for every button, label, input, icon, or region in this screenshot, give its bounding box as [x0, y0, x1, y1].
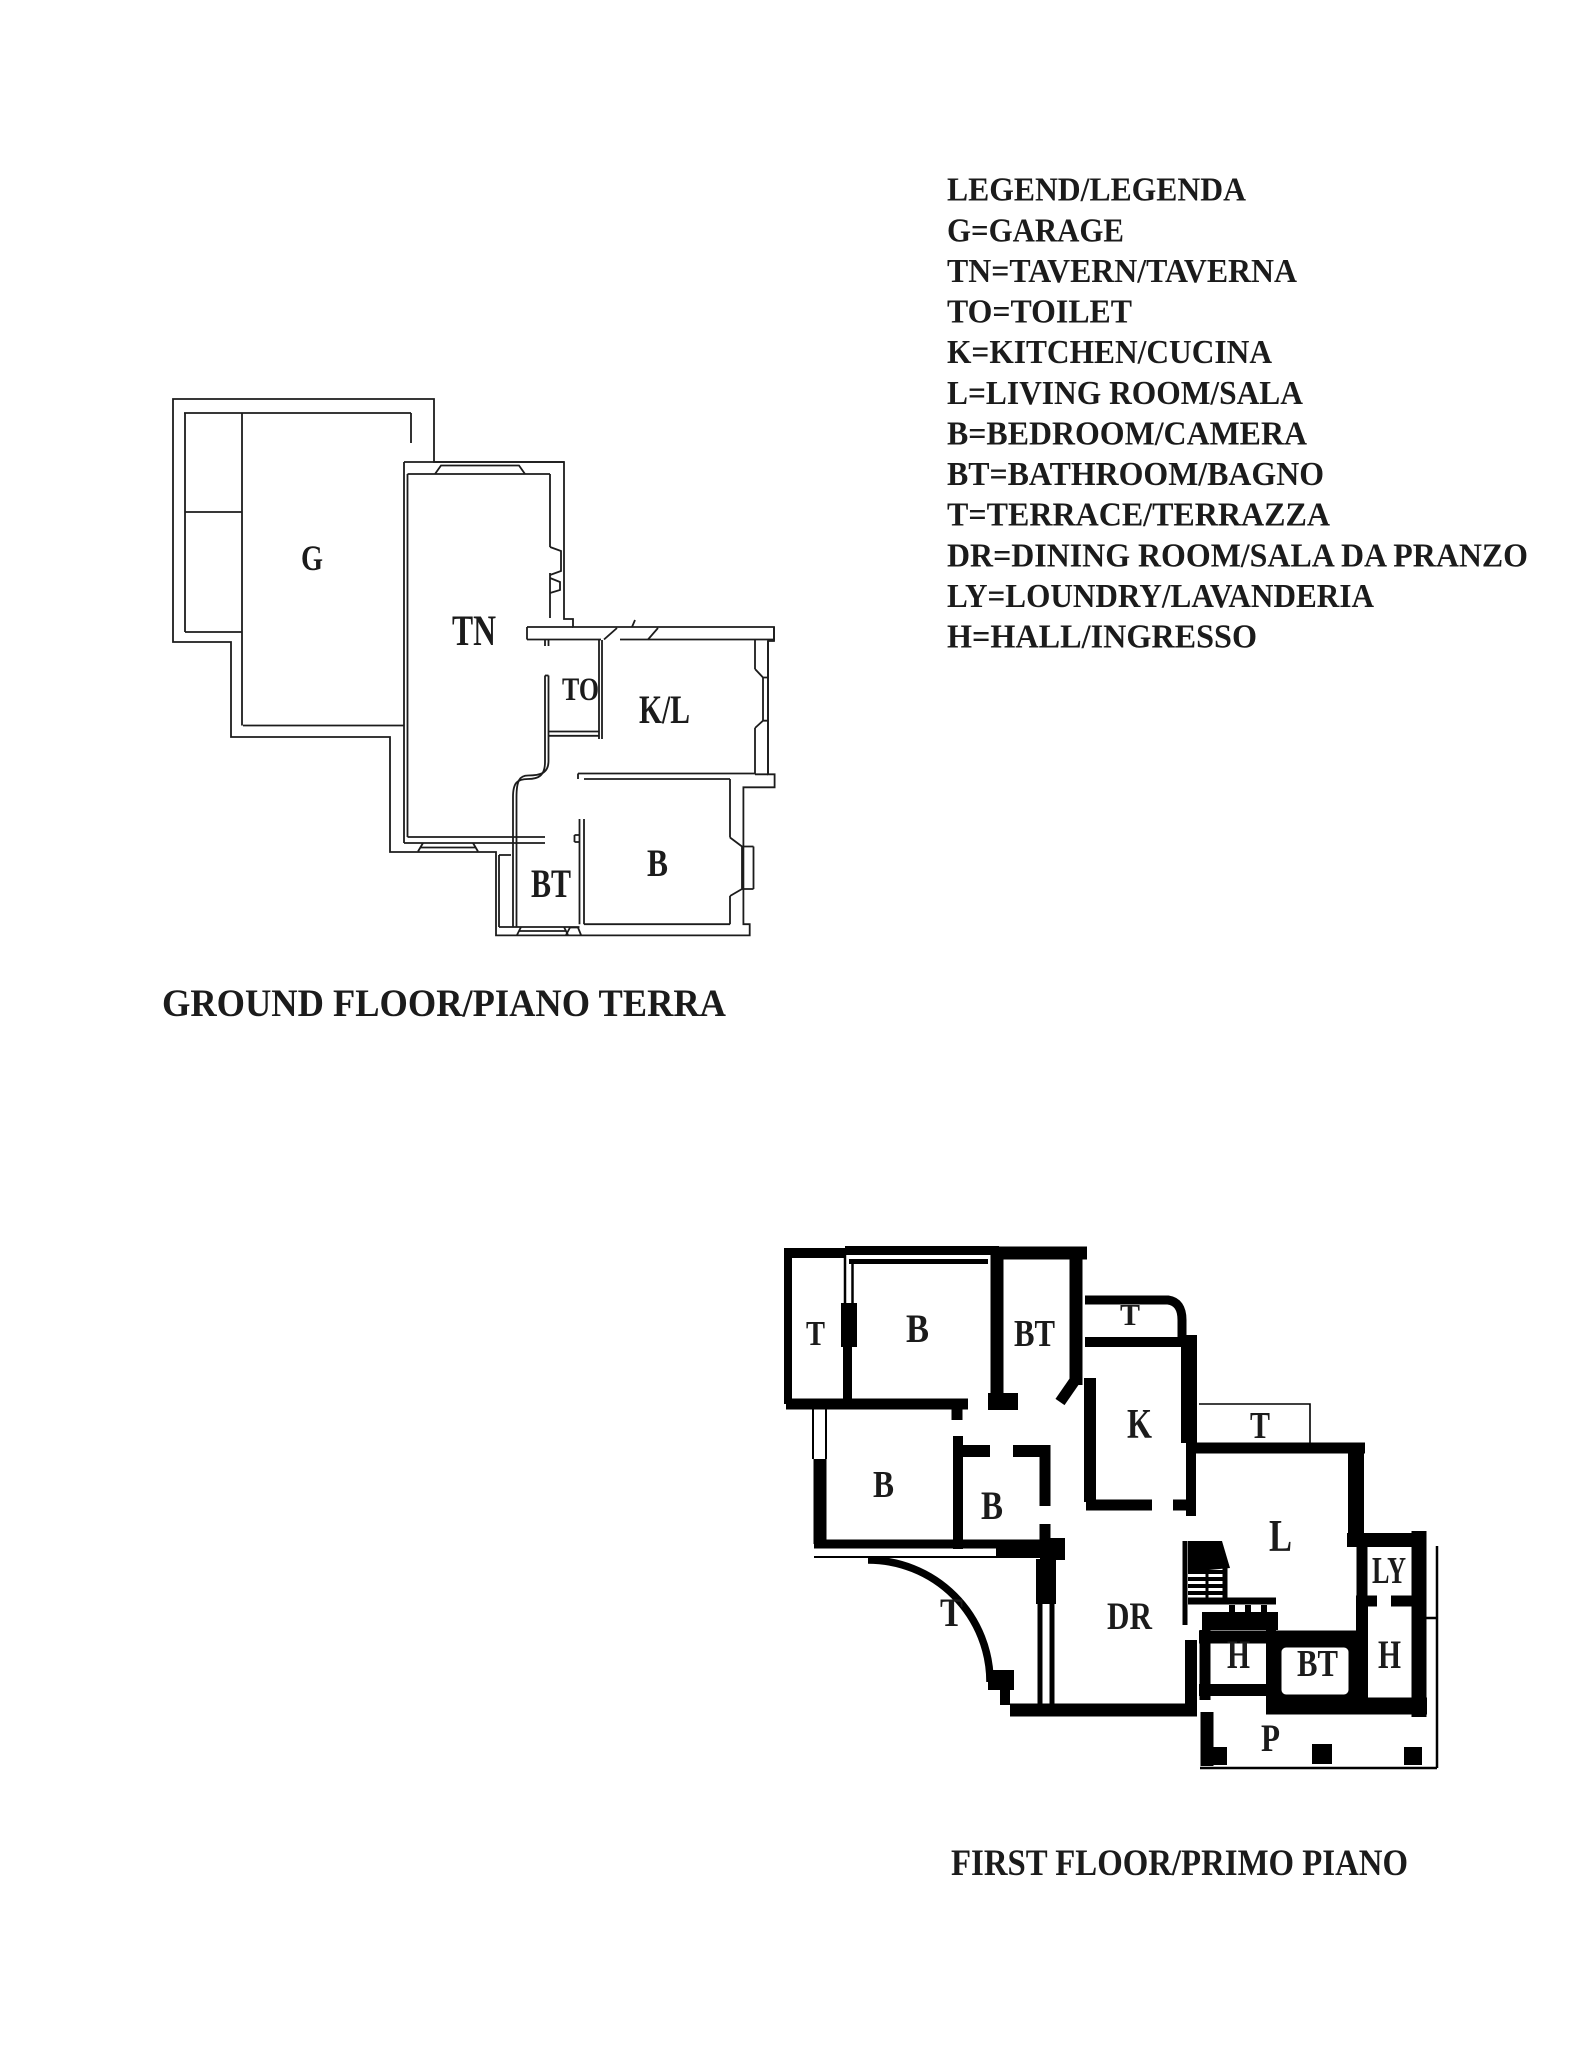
svg-text:B: B	[906, 1306, 929, 1351]
svg-text:K: K	[1127, 1402, 1152, 1448]
svg-text:B=BEDROOM/CAMERA: B=BEDROOM/CAMERA	[947, 415, 1307, 452]
svg-text:BT: BT	[1014, 1313, 1055, 1355]
svg-text:K/L: K/L	[639, 687, 690, 732]
svg-text:T: T	[940, 1590, 963, 1635]
svg-text:LY=LOUNDRY/LAVANDERIA: LY=LOUNDRY/LAVANDERIA	[947, 578, 1374, 615]
svg-text:TN=TAVERN/TAVERNA: TN=TAVERN/TAVERNA	[947, 253, 1297, 290]
svg-text:H=HALL/INGRESSO: H=HALL/INGRESSO	[947, 619, 1257, 656]
svg-text:K=KITCHEN/CUCINA: K=KITCHEN/CUCINA	[947, 334, 1272, 371]
svg-text:T=TERRACE/TERRAZZA: T=TERRACE/TERRAZZA	[947, 497, 1330, 534]
svg-text:BT: BT	[1297, 1643, 1338, 1685]
svg-text:DR: DR	[1107, 1595, 1153, 1638]
svg-text:BT=BATHROOM/BAGNO: BT=BATHROOM/BAGNO	[947, 456, 1324, 493]
svg-text:L=LIVING ROOM/SALA: L=LIVING ROOM/SALA	[947, 375, 1303, 412]
svg-text:T: T	[1120, 1297, 1140, 1332]
svg-text:TN: TN	[452, 608, 496, 655]
svg-text:P: P	[1261, 1717, 1280, 1760]
svg-text:B: B	[981, 1483, 1003, 1528]
svg-text:FIRST FLOOR/PRIMO PIANO: FIRST FLOOR/PRIMO PIANO	[951, 1843, 1408, 1884]
svg-text:L: L	[1269, 1511, 1292, 1561]
svg-text:G=GARAGE: G=GARAGE	[947, 212, 1124, 249]
svg-text:BT: BT	[531, 861, 571, 906]
svg-text:H: H	[1227, 1632, 1250, 1677]
svg-text:B: B	[647, 842, 668, 885]
svg-text:T: T	[1250, 1405, 1270, 1447]
svg-text:TO: TO	[562, 672, 599, 708]
svg-text:LY: LY	[1372, 1550, 1406, 1592]
svg-text:DR=DINING ROOM/SALA DA PRANZO: DR=DINING ROOM/SALA DA PRANZO	[947, 537, 1528, 574]
svg-text:G: G	[301, 538, 323, 578]
svg-text:TO=TOILET: TO=TOILET	[947, 294, 1132, 331]
svg-text:LEGEND/LEGENDA: LEGEND/LEGENDA	[947, 172, 1246, 209]
svg-text:H: H	[1378, 1632, 1401, 1677]
svg-text:GROUND FLOOR/PIANO TERRA: GROUND FLOOR/PIANO TERRA	[162, 982, 726, 1025]
svg-text:T: T	[806, 1314, 825, 1353]
svg-text:B: B	[873, 1464, 894, 1506]
